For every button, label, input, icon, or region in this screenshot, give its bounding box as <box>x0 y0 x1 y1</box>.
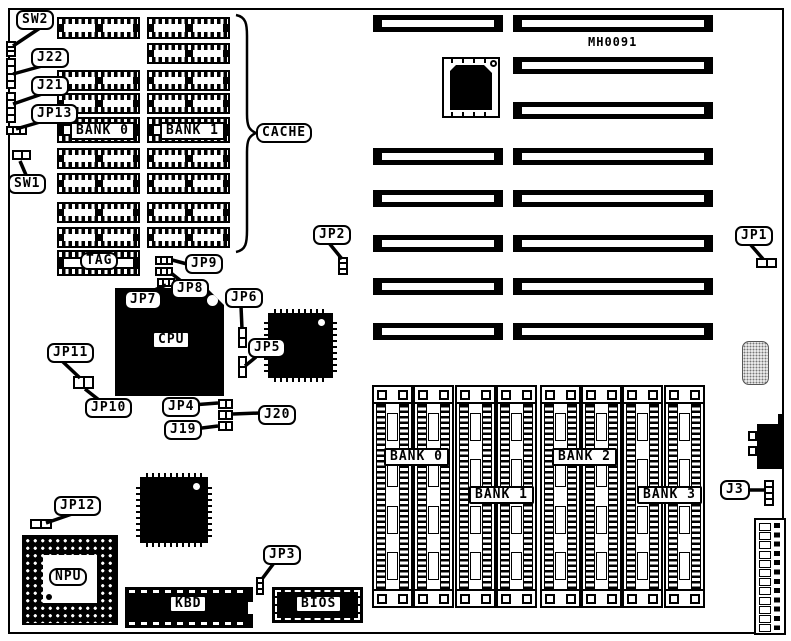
board-area: MH0091 BANK 0 BANK 1 TAG CACHE CPU NPU K… <box>0 0 791 641</box>
power-connector <box>757 424 784 469</box>
callout-jp7: JP7 <box>124 290 162 310</box>
cache-socket <box>57 173 140 194</box>
bios-label: BIOS <box>296 596 341 612</box>
jp9-jumper <box>155 256 173 265</box>
edge-connector-pin <box>759 541 771 549</box>
jp2-jumper <box>338 257 348 275</box>
jp6-jumper <box>238 327 247 348</box>
plcc-notch-circle <box>490 60 497 67</box>
cache-bank0-label: BANK 0 <box>70 122 135 140</box>
j20-header <box>218 410 233 420</box>
simm-socket <box>372 385 413 608</box>
cpu-label: CPU <box>153 332 189 348</box>
cache-socket <box>147 43 230 64</box>
edge-connector-pin <box>759 624 771 632</box>
jp4-jumper <box>218 399 233 409</box>
callout-jp11: JP11 <box>47 343 94 363</box>
isa-slot-long <box>513 235 713 252</box>
isa-slot-short <box>373 15 503 32</box>
cache-socket <box>57 227 140 248</box>
cache-socket <box>147 17 230 39</box>
callout-j3: J3 <box>720 480 750 500</box>
callout-jp8: JP8 <box>171 279 209 299</box>
isa-slot-long <box>513 278 713 295</box>
callout-sw1: SW1 <box>8 174 46 194</box>
cache-socket <box>147 148 230 169</box>
motherboard-diagram: MH0091 BANK 0 BANK 1 TAG CACHE CPU NPU K… <box>0 0 791 641</box>
jp11-jumper <box>73 376 94 389</box>
callout-jp9: JP9 <box>185 254 223 274</box>
edge-connector-pin <box>759 560 771 568</box>
board-id-label: MH0091 <box>584 35 641 49</box>
qfp2-pin1-dot <box>193 483 200 490</box>
isa-slot-short <box>373 190 503 207</box>
simm-socket <box>413 385 454 608</box>
edge-connector-pin <box>759 569 771 577</box>
jp8-jumper <box>155 267 173 276</box>
callout-line-j20 <box>233 413 260 414</box>
jp12-jumper <box>30 519 52 529</box>
isa-slot-short <box>373 323 503 340</box>
cache-socket <box>57 148 140 169</box>
qfp1-pin1-dot <box>318 319 325 326</box>
power-connector-tab <box>748 431 757 441</box>
isa-slot-long <box>513 102 713 119</box>
board-edge-step <box>778 414 784 426</box>
callout-j19: J19 <box>164 420 202 440</box>
capacitor <box>742 341 769 385</box>
ram-bank2-label: BANK 2 <box>552 448 617 466</box>
callout-j22: J22 <box>31 48 69 68</box>
power-connector-tab <box>748 446 757 456</box>
cpu-pin1-dot <box>207 295 218 306</box>
callout-j20: J20 <box>258 405 296 425</box>
cache-socket <box>57 70 140 91</box>
sw1-switch <box>12 150 31 160</box>
callout-line-sw1 <box>20 161 26 175</box>
callout-line-jp1 <box>750 244 763 259</box>
isa-slot-short <box>373 235 503 252</box>
isa-slot-long <box>513 323 713 340</box>
simm-socket <box>581 385 622 608</box>
cache-label: CACHE <box>256 123 312 143</box>
kbd-label: KBD <box>170 596 206 612</box>
callout-jp1: JP1 <box>735 226 773 246</box>
edge-connector-pin <box>759 523 771 531</box>
isa-slot-long <box>513 57 713 74</box>
callout-jp10: JP10 <box>85 398 132 418</box>
callout-jp2: JP2 <box>313 225 351 245</box>
cache-socket <box>147 70 230 91</box>
cache-socket <box>57 202 140 223</box>
edge-connector <box>754 518 786 635</box>
cache-socket <box>147 227 230 248</box>
callout-jp13: JP13 <box>31 104 78 124</box>
jp1-jumper <box>756 258 777 268</box>
j21-header <box>6 92 16 123</box>
callout-line-sw2 <box>13 28 40 46</box>
cache-brace <box>236 15 256 252</box>
callout-j21: J21 <box>31 76 69 96</box>
j19-header <box>218 421 233 431</box>
isa-slot-long <box>513 15 713 32</box>
callout-jp6: JP6 <box>225 288 263 308</box>
npu-label: NPU <box>49 568 87 586</box>
tag-label: TAG <box>80 252 118 270</box>
edge-connector-pin <box>759 551 771 559</box>
edge-connector-pin <box>759 578 771 586</box>
edge-connector-pin <box>759 615 771 623</box>
edge-connector-pin <box>759 606 771 614</box>
kbd-notch <box>248 602 253 614</box>
callout-sw2: SW2 <box>16 10 54 30</box>
jp3-jumper <box>256 577 264 595</box>
callout-jp3: JP3 <box>263 545 301 565</box>
cache-socket <box>57 17 140 39</box>
ram-bank1-label: BANK 1 <box>469 486 534 504</box>
j3-header <box>764 480 774 506</box>
ram-bank3-label: BANK 3 <box>637 486 702 504</box>
plcc-socket <box>442 57 500 118</box>
isa-slot-long <box>513 190 713 207</box>
isa-slot-long <box>513 148 713 165</box>
jp5-jumper <box>238 356 247 378</box>
cache-bank1-label: BANK 1 <box>160 122 225 140</box>
ram-bank0-label: BANK 0 <box>384 448 449 466</box>
callout-jp12: JP12 <box>54 496 101 516</box>
cache-socket <box>147 93 230 114</box>
simm-socket <box>540 385 581 608</box>
edge-connector-pin <box>759 587 771 595</box>
callout-line-jp6 <box>241 306 242 329</box>
isa-slot-short <box>373 148 503 165</box>
jp13-jumper <box>6 126 27 135</box>
sw2-switch <box>6 41 16 57</box>
j22-header <box>6 58 16 89</box>
callout-jp5: JP5 <box>248 338 286 358</box>
callout-jp4: JP4 <box>162 397 200 417</box>
isa-slot-short <box>373 278 503 295</box>
edge-connector-pin <box>759 597 771 605</box>
edge-connector-pin <box>759 532 771 540</box>
cache-socket <box>147 202 230 223</box>
cache-socket <box>147 173 230 194</box>
chipset-qfp-2 <box>140 477 208 543</box>
npu-pin1-dot <box>46 594 52 600</box>
